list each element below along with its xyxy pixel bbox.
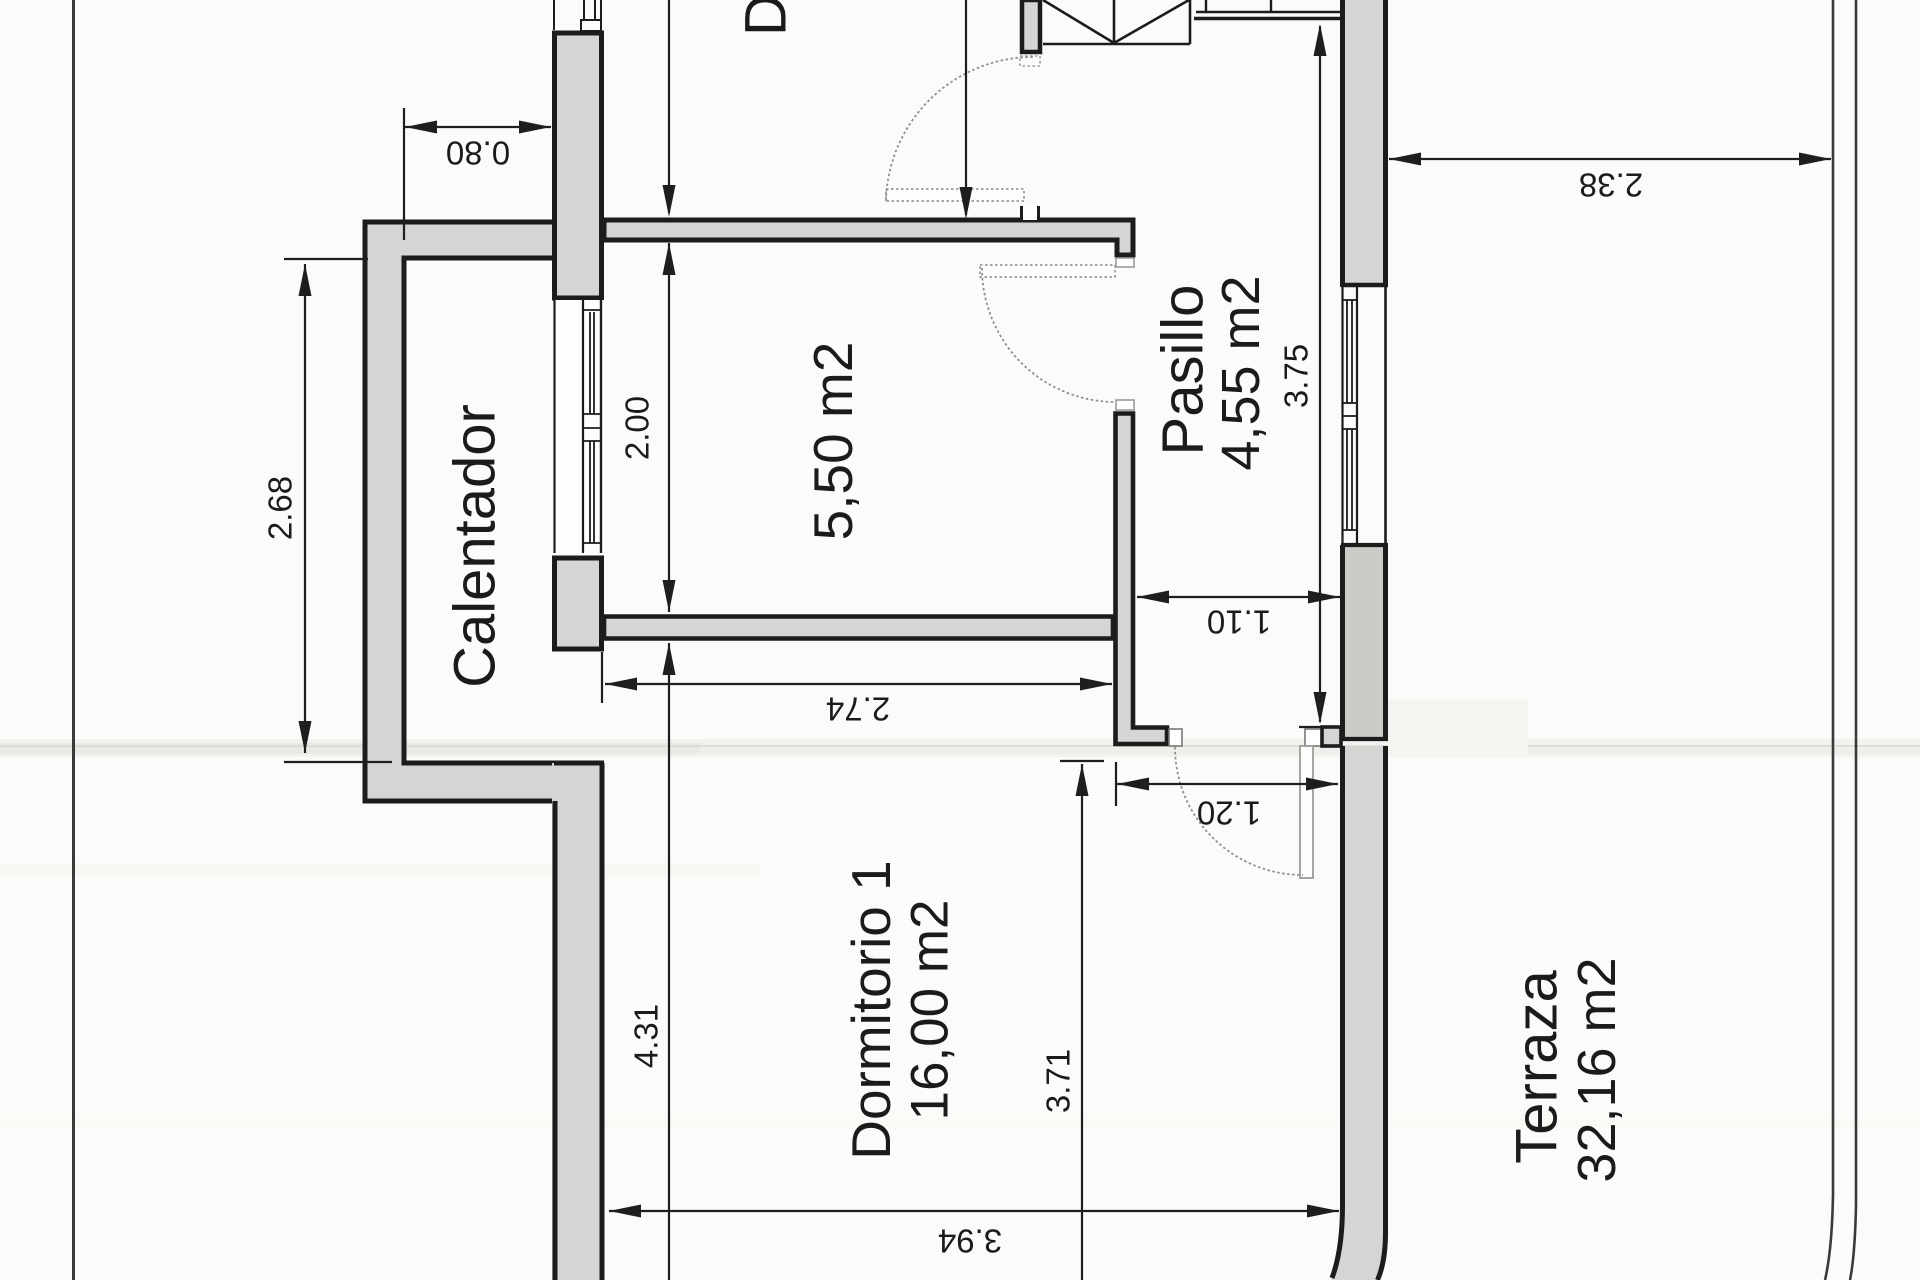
svg-text:D: D (734, 0, 799, 36)
svg-text:3.75: 3.75 (1278, 344, 1315, 408)
svg-text:Dormitorio 1: Dormitorio 1 (840, 860, 902, 1160)
svg-text:3.94: 3.94 (938, 1223, 1002, 1260)
svg-text:5,50 m2: 5,50 m2 (802, 342, 864, 541)
svg-text:3.71: 3.71 (1040, 1049, 1077, 1113)
svg-text:2.00: 2.00 (619, 396, 656, 460)
svg-text:4.31: 4.31 (628, 1004, 665, 1068)
svg-text:2.38: 2.38 (1579, 167, 1643, 204)
svg-text:1.20: 1.20 (1197, 795, 1261, 832)
svg-text:2.68: 2.68 (262, 476, 299, 540)
svg-text:32,16 m2: 32,16 m2 (1567, 957, 1627, 1182)
svg-text:2.74: 2.74 (826, 691, 890, 728)
svg-text:Calentador: Calentador (443, 404, 508, 688)
svg-text:Terraza: Terraza (1505, 970, 1570, 1164)
svg-text:Pasillo: Pasillo (1151, 285, 1216, 456)
svg-text:4,55 m2: 4,55 m2 (1211, 275, 1271, 470)
svg-text:0.80: 0.80 (446, 135, 510, 172)
svg-text:1.10: 1.10 (1207, 604, 1271, 641)
svg-text:16,00 m2: 16,00 m2 (901, 900, 960, 1121)
